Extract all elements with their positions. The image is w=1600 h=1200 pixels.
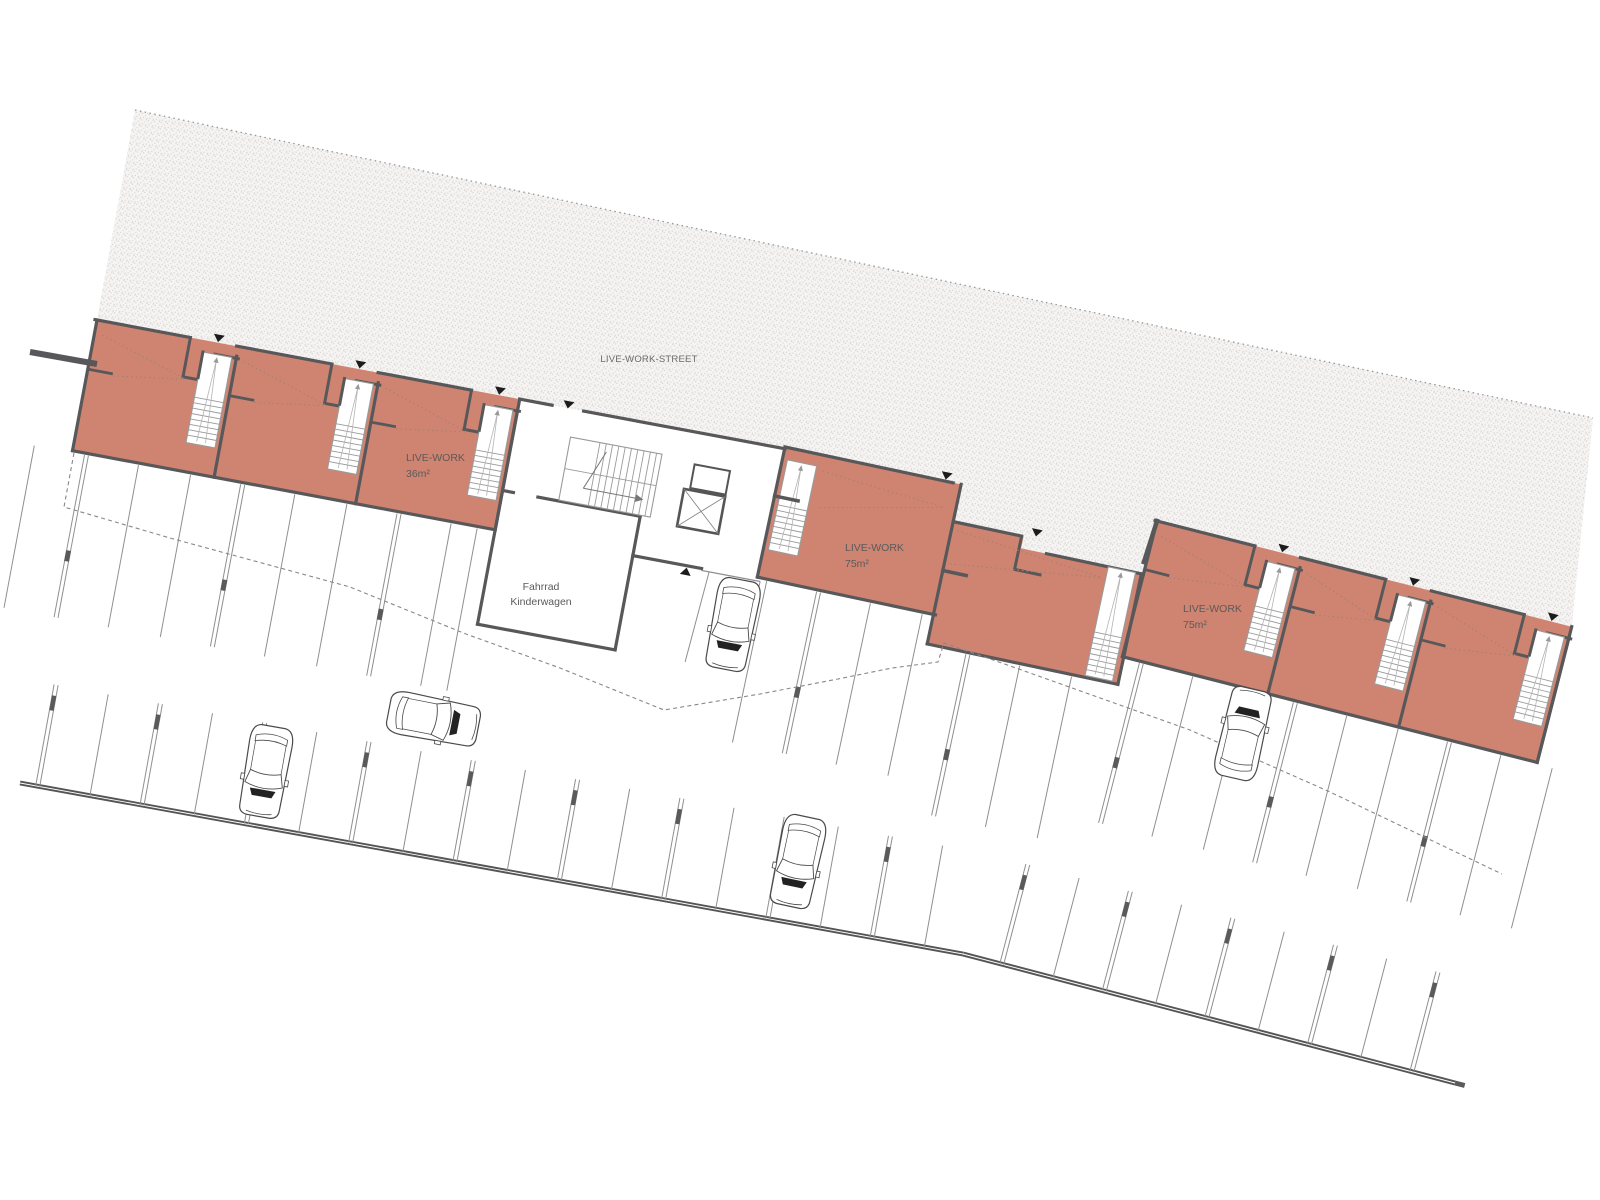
svg-text:36m²: 36m²	[406, 468, 430, 480]
svg-text:LIVE-WORK: LIVE-WORK	[845, 542, 904, 554]
svg-text:75m²: 75m²	[1183, 619, 1207, 631]
svg-text:LIVE-WORK-STREET: LIVE-WORK-STREET	[600, 354, 697, 365]
svg-text:75m²: 75m²	[845, 558, 869, 570]
svg-text:Fahrrad: Fahrrad	[523, 581, 560, 593]
svg-text:LIVE-WORK: LIVE-WORK	[1183, 603, 1242, 615]
svg-text:LIVE-WORK: LIVE-WORK	[406, 452, 465, 464]
svg-text:Kinderwagen: Kinderwagen	[510, 596, 571, 608]
